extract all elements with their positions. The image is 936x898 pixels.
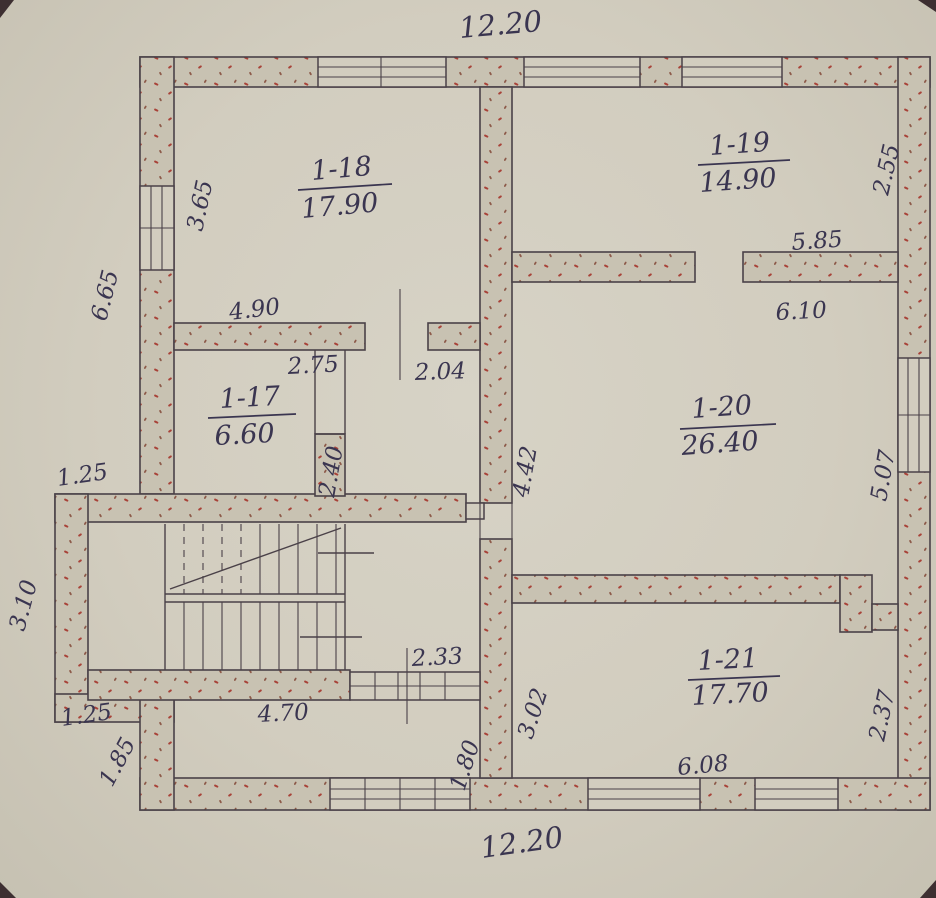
window-top-room18	[318, 57, 446, 87]
dim-right-middle: 5.07	[866, 448, 901, 503]
dim-room17-top: 4.90	[227, 294, 282, 326]
dim-bottom-overall: 12.20	[478, 820, 565, 865]
room-1-17-area: 6.60	[214, 418, 276, 452]
dim-left-bottom-wall: 1.85	[94, 733, 141, 790]
room-1-21-area: 17.70	[691, 677, 770, 712]
dim-stair-bottom: 4.70	[256, 699, 310, 728]
room-1-19-area: 14.90	[698, 163, 777, 199]
room-1-18-number: 1-18	[310, 151, 373, 187]
window-bottom-b	[588, 778, 700, 810]
door-jamb-box	[466, 503, 484, 519]
floor-plan: 1-18 17.90 1-19 14.90 1-17 6.60 1-20 26.…	[0, 0, 936, 898]
staircase	[165, 524, 374, 670]
dim-room21-bottom: 6.08	[676, 751, 729, 781]
window-right-wall	[898, 358, 930, 472]
dim-wall19-bottom: 6.10	[775, 297, 828, 326]
dim-porch-wall: 2.33	[410, 643, 464, 672]
room-1-20-number: 1-20	[690, 390, 753, 425]
dim-top-overall: 12.20	[458, 4, 544, 45]
window-left-wall	[140, 186, 174, 270]
dim-door-18: 2.04	[413, 358, 466, 386]
dim-room20-left: 4.42	[508, 444, 543, 500]
dim-right-lower: 2.37	[864, 687, 900, 744]
room-1-21-number: 1-21	[697, 643, 759, 677]
window-bottom-c	[755, 778, 838, 810]
porch-partition-window	[350, 672, 480, 700]
dim-left-step-top: 1.25	[55, 459, 109, 492]
dim-left-side-lower: 3.10	[5, 577, 43, 633]
room-1-18-area: 17.90	[300, 187, 380, 225]
scanned-floor-plan-page: 1-18 17.90 1-19 14.90 1-17 6.60 1-20 26.…	[0, 0, 936, 898]
room-1-20-area: 26.40	[679, 426, 759, 462]
dim-wall19-top: 5.85	[791, 226, 844, 256]
window-top-room19-a	[524, 57, 640, 87]
window-top-room19-b	[682, 57, 782, 87]
dim-left-window: 3.65	[182, 178, 218, 234]
dim-room17-wall: 2.75	[286, 351, 340, 380]
dim-room21-left: 3.02	[513, 685, 554, 742]
stair-direction-line	[170, 528, 341, 589]
dim-left-outer: 6.65	[87, 267, 125, 323]
room-1-17-number: 1-17	[219, 381, 282, 415]
room-1-19-number: 1-19	[708, 127, 771, 162]
stair-door-ticks	[300, 553, 374, 637]
